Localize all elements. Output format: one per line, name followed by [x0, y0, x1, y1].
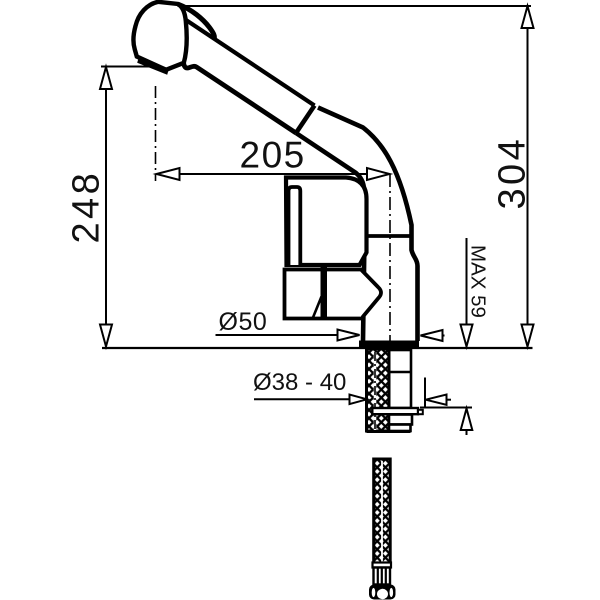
svg-text:Ø50: Ø50	[219, 308, 268, 336]
svg-text:Ø38 - 40: Ø38 - 40	[253, 369, 346, 396]
svg-text:205: 205	[240, 135, 306, 176]
svg-text:248: 248	[66, 170, 108, 244]
svg-text:MAX 59: MAX 59	[467, 245, 490, 318]
svg-text:304: 304	[492, 136, 534, 210]
